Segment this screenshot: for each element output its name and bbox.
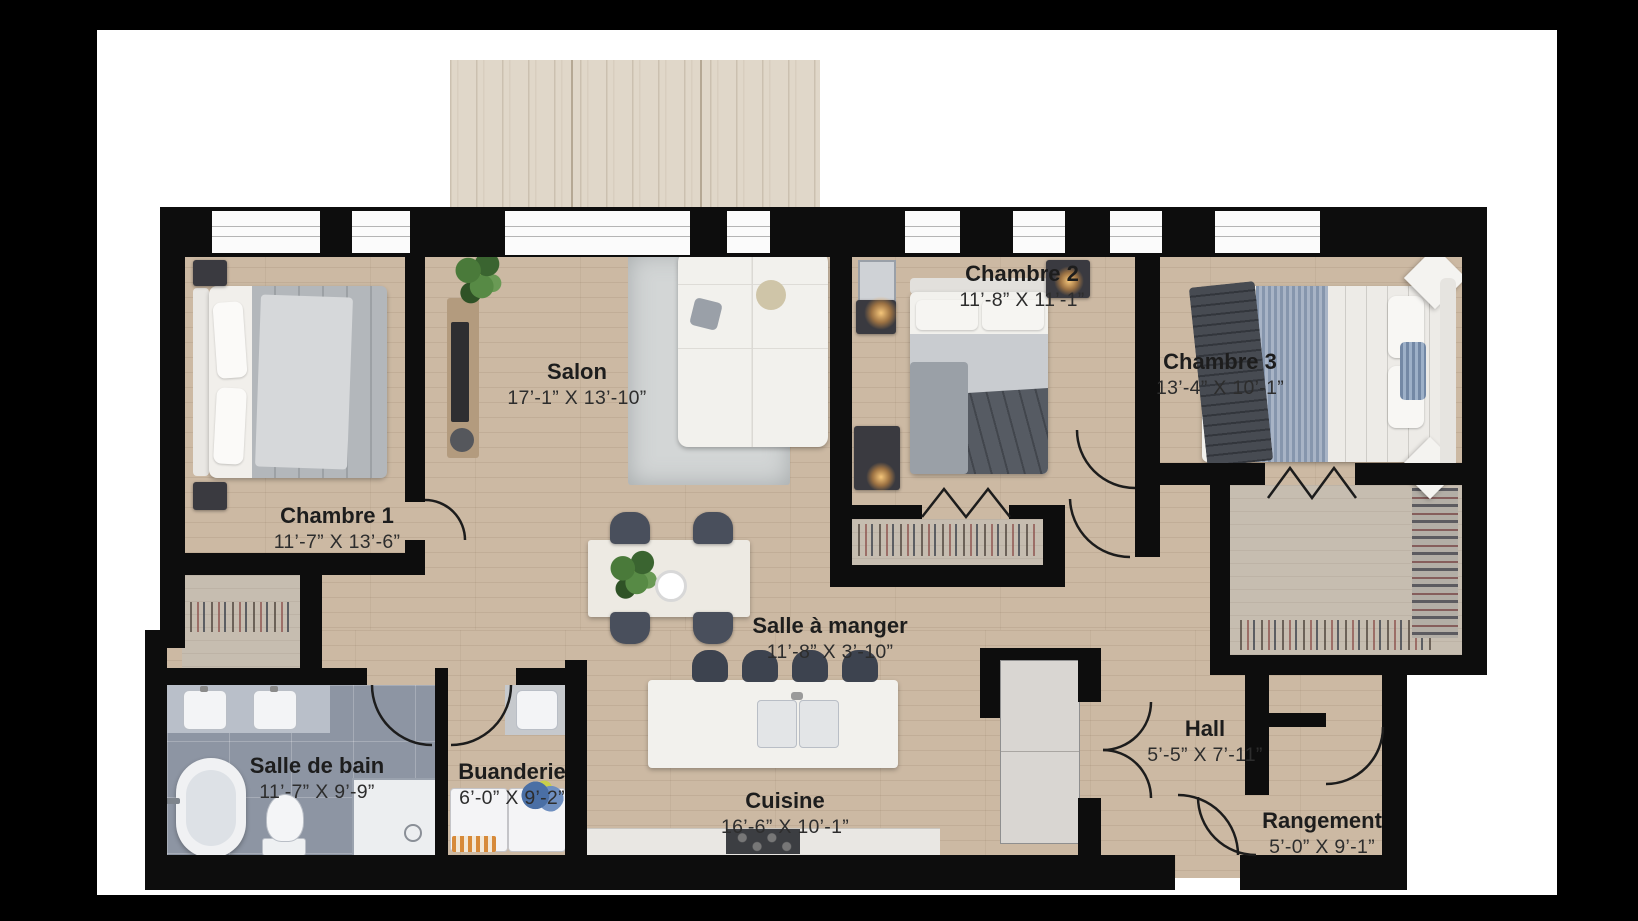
room-name: Salon <box>507 359 646 385</box>
room-name: Chambre 2 <box>959 261 1084 287</box>
room-dimensions: 5’-5” X 7’-11” <box>1147 742 1262 768</box>
room-dimensions: 6’-0” X 9’-2” <box>458 785 566 811</box>
room-label-hall: Hall 5’-5” X 7’-11” <box>1147 716 1262 768</box>
room-name: Buanderie <box>458 759 566 785</box>
room-label-cuisine: Cuisine 16’-6” X 10’-1” <box>721 788 849 840</box>
bifold-door-chambre2-closet <box>922 489 1010 517</box>
room-name: Chambre 1 <box>274 503 401 529</box>
door-arc-bathroom <box>372 685 432 745</box>
room-label-salle-de-bain: Salle de bain 11’-7” X 9’-9” <box>250 753 385 805</box>
door-arc-rangement <box>1198 797 1256 855</box>
floorplan-canvas: Salon 17’-1” X 13’-10” Chambre 1 11’-7” … <box>0 0 1638 921</box>
room-label-buanderie: Buanderie 6’-0” X 9’-2” <box>458 759 566 811</box>
door-arc-chambre2-lower <box>1070 499 1130 557</box>
door-arc-buanderie <box>451 685 511 745</box>
room-name: Salle à manger <box>752 613 907 639</box>
room-dimensions: 11’-7” X 9’-9” <box>250 779 385 805</box>
room-label-salon: Salon 17’-1” X 13’-10” <box>507 359 646 411</box>
room-dimensions: 13’-4” X 10’-1” <box>1156 375 1284 401</box>
door-arc-entry <box>1178 795 1238 855</box>
door-arc-chambre2-upper <box>1077 430 1135 488</box>
room-dimensions: 11’-8” X 11’-1” <box>959 287 1084 313</box>
room-dimensions: 11’-7” X 13’-6” <box>274 529 401 555</box>
room-name: Chambre 3 <box>1156 349 1284 375</box>
room-label-salle-a-manger: Salle à manger 11’-8” X 3’-10” <box>752 613 907 665</box>
door-arc-chambre1 <box>425 500 465 540</box>
room-dimensions: 16’-6” X 10’-1” <box>721 814 849 840</box>
door-arc-hall-french-right <box>1103 750 1151 798</box>
room-name: Hall <box>1147 716 1262 742</box>
bifold-door-chambre3 <box>1268 468 1356 498</box>
room-dimensions: 11’-8” X 3’-10” <box>752 639 907 665</box>
room-name: Rangement <box>1262 808 1382 834</box>
door-arc-hall-french-left <box>1103 702 1151 750</box>
room-name: Salle de bain <box>250 753 385 779</box>
room-label-chambre1: Chambre 1 11’-7” X 13’-6” <box>274 503 401 555</box>
room-name: Cuisine <box>721 788 849 814</box>
room-label-chambre3: Chambre 3 13’-4” X 10’-1” <box>1156 349 1284 401</box>
door-swing-arcs <box>0 0 1638 921</box>
room-dimensions: 17’-1” X 13’-10” <box>507 385 646 411</box>
room-label-chambre2: Chambre 2 11’-8” X 11’-1” <box>959 261 1084 313</box>
room-dimensions: 5’-0” X 9’-1” <box>1262 834 1382 860</box>
door-arc-closet3 <box>1326 727 1383 784</box>
room-label-rangement: Rangement 5’-0” X 9’-1” <box>1262 808 1382 860</box>
